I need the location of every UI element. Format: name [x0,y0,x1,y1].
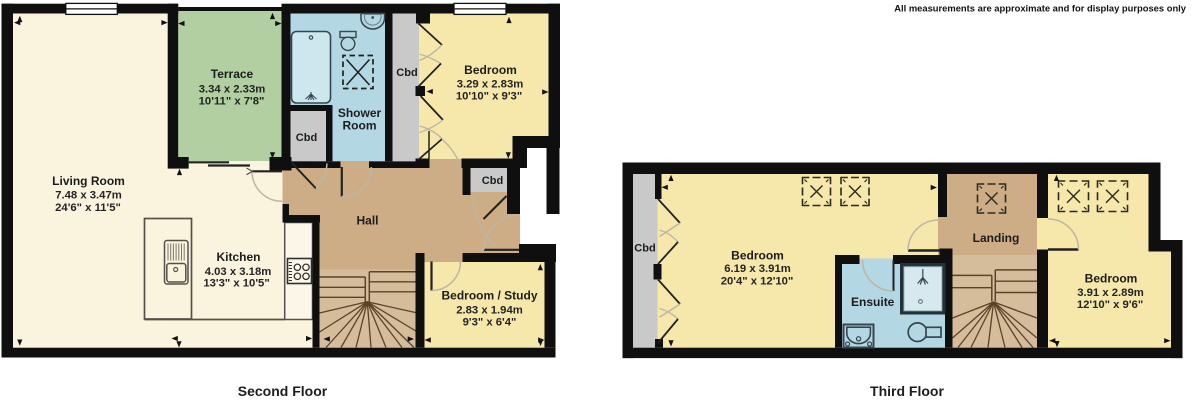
svg-text:All measurements are approxima: All measurements are approximate and for… [894,3,1187,14]
svg-text:3.91 x 2.89m: 3.91 x 2.89m [1077,287,1144,299]
svg-text:12'10" x 9'6": 12'10" x 9'6" [1077,299,1143,311]
svg-text:Bedroom: Bedroom [731,249,784,263]
svg-text:9'3" x 6'4": 9'3" x 6'4" [463,317,517,329]
svg-text:Landing: Landing [973,231,1020,245]
svg-text:Cbd: Cbd [482,175,503,187]
svg-text:13'3" x 10'5": 13'3" x 10'5" [203,277,269,289]
svg-text:6.19 x 3.91m: 6.19 x 3.91m [724,263,791,275]
svg-text:4.03 x 3.18m: 4.03 x 3.18m [205,266,272,278]
svg-text:20'4" x 12'10": 20'4" x 12'10" [721,276,794,288]
svg-text:Ensuite: Ensuite [851,295,895,309]
svg-text:10'10" x 9'3": 10'10" x 9'3" [456,91,522,103]
svg-text:Bedroom: Bedroom [1085,272,1138,286]
svg-text:Bedroom: Bedroom [464,63,517,77]
svg-text:Cbd: Cbd [296,132,317,144]
svg-text:Cbd: Cbd [634,243,655,255]
svg-text:Hall: Hall [356,214,378,228]
svg-text:3.34 x 2.33m: 3.34 x 2.33m [199,84,266,96]
svg-text:2.83 x 1.94m: 2.83 x 1.94m [456,305,523,317]
svg-text:24'6" x 11'5": 24'6" x 11'5" [55,202,121,214]
svg-text:Third Floor: Third Floor [870,383,944,399]
svg-text:Terrace: Terrace [211,67,254,81]
svg-text:Kitchen: Kitchen [216,250,260,264]
svg-text:Living Room: Living Room [52,174,125,188]
svg-text:Bedroom / Study: Bedroom / Study [441,289,537,303]
svg-text:3.29 x 2.83m: 3.29 x 2.83m [457,79,524,91]
svg-text:Second Floor: Second Floor [238,383,328,399]
svg-text:Cbd: Cbd [396,67,417,79]
svg-text:7.48 x 3.47m: 7.48 x 3.47m [55,190,122,202]
svg-text:10'11" x 7'8": 10'11" x 7'8" [199,96,265,108]
svg-text:Room: Room [343,119,377,133]
